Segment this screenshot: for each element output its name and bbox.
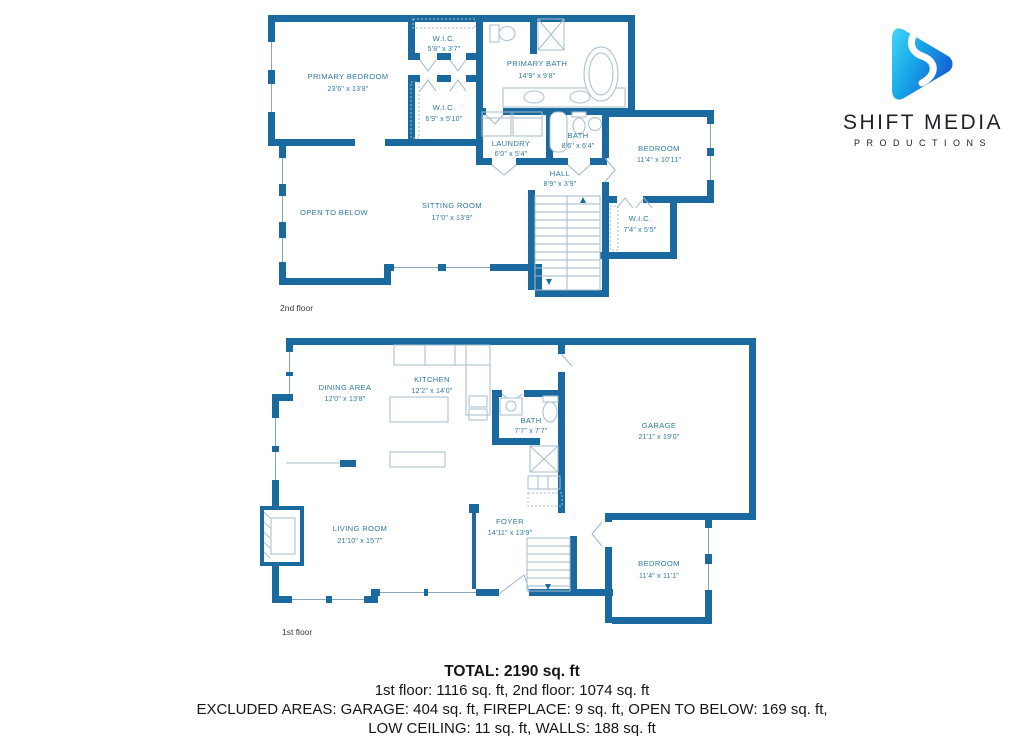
svg-text:BATH: BATH bbox=[520, 416, 541, 425]
room-label-wic-right: W.I.C. 7'4" x 5'5" bbox=[624, 214, 657, 234]
svg-text:6'0" x 5'4": 6'0" x 5'4" bbox=[495, 151, 528, 158]
svg-text:GARAGE: GARAGE bbox=[642, 421, 677, 430]
svg-text:12'0" x 13'8": 12'0" x 13'8" bbox=[325, 396, 366, 403]
shower-icon bbox=[538, 19, 564, 50]
room-label-sitting-room: SITTING ROOM 17'0" x 13'9" bbox=[422, 201, 482, 222]
fireplace-icon bbox=[262, 508, 302, 564]
room-label-bedroom-2nd: BEDROOM 11'4" x 10'11" bbox=[637, 144, 681, 164]
svg-text:7'7" x 7'7": 7'7" x 7'7" bbox=[515, 428, 548, 435]
walls-2nd bbox=[268, 15, 714, 297]
summary-excluded-2: LOW CEILING: 11 sq. ft, WALLS: 188 sq. f… bbox=[0, 719, 1024, 738]
svg-text:5'8" x 3'7": 5'8" x 3'7" bbox=[428, 46, 461, 53]
floor-plan-1st: KITCHEN 12'2" x 14'0" DINING AREA 12'0" … bbox=[262, 338, 756, 637]
room-label-living-room: LIVING ROOM 21'10" x 15'7" bbox=[333, 524, 387, 545]
svg-text:23'6" x 13'8": 23'6" x 13'8" bbox=[328, 86, 369, 93]
floorplan-flyer: { "logo": { "brand": "SHIFT MEDIA", "sub… bbox=[0, 0, 1024, 739]
logo: SHIFT MEDIA PRODUCTIONS bbox=[838, 26, 1008, 148]
svg-text:21'1" x 19'0": 21'1" x 19'0" bbox=[639, 434, 680, 441]
room-label-wic-top: W.I.C. 5'8" x 3'7" bbox=[428, 34, 461, 53]
staircase-1st-icon bbox=[527, 538, 570, 591]
summary-excluded-1: EXCLUDED AREAS: GARAGE: 404 sq. ft, FIRE… bbox=[0, 700, 1024, 719]
svg-text:W.I.C.: W.I.C. bbox=[433, 34, 456, 43]
room-labels-2nd: W.I.C. 5'8" x 3'7" PRIMARY BEDROOM 23'6"… bbox=[300, 34, 681, 234]
storage-icon bbox=[528, 446, 562, 506]
svg-text:DINING AREA: DINING AREA bbox=[319, 383, 372, 392]
staircase-2nd-icon bbox=[535, 196, 600, 290]
svg-text:FOYER: FOYER bbox=[496, 517, 524, 526]
svg-text:11'4" x 10'11": 11'4" x 10'11" bbox=[637, 157, 681, 164]
svg-text:LIVING ROOM: LIVING ROOM bbox=[333, 524, 387, 533]
svg-text:PRIMARY BEDROOM: PRIMARY BEDROOM bbox=[308, 72, 389, 81]
area-summary: TOTAL: 2190 sq. ft 1st floor: 1116 sq. f… bbox=[0, 662, 1024, 738]
room-label-primary-bedroom: PRIMARY BEDROOM 23'6" x 13'8" bbox=[308, 72, 389, 93]
brand-icon bbox=[892, 26, 954, 102]
floor-plan-2nd: W.I.C. 5'8" x 3'7" PRIMARY BEDROOM 23'6"… bbox=[268, 15, 714, 313]
room-label-wic-mid: W.I.C. 6'9" x 5'10" bbox=[426, 103, 463, 123]
svg-text:BEDROOM: BEDROOM bbox=[638, 559, 680, 568]
bathtub-icon bbox=[584, 47, 618, 101]
brand-subtitle: PRODUCTIONS bbox=[838, 138, 1008, 148]
svg-text:HALL: HALL bbox=[550, 169, 570, 178]
room-label-bedroom-1st: BEDROOM 11'4" x 11'1" bbox=[638, 559, 680, 580]
summary-total: TOTAL: 2190 sq. ft bbox=[0, 662, 1024, 681]
svg-text:11'4" x 11'1": 11'4" x 11'1" bbox=[639, 573, 679, 580]
room-label-dining-area: DINING AREA 12'0" x 13'8" bbox=[319, 383, 372, 403]
room-label-kitchen: KITCHEN 12'2" x 14'0" bbox=[412, 375, 453, 395]
summary-floors: 1st floor: 1116 sq. ft, 2nd floor: 1074 … bbox=[0, 681, 1024, 700]
washer-dryer-icon bbox=[482, 112, 542, 136]
svg-text:W.I.C.: W.I.C. bbox=[629, 214, 652, 223]
room-label-open-to-below: OPEN TO BELOW bbox=[300, 208, 368, 217]
svg-text:LAUNDRY: LAUNDRY bbox=[492, 139, 531, 148]
room-label-hall: HALL 8'9" x 3'9" bbox=[544, 169, 577, 188]
svg-text:21'10" x 15'7": 21'10" x 15'7" bbox=[337, 538, 382, 545]
svg-text:8'6" x 6'4": 8'6" x 6'4" bbox=[562, 143, 595, 150]
svg-text:8'9" x 3'9": 8'9" x 3'9" bbox=[544, 181, 577, 188]
room-label-primary-bath: PRIMARY BATH 14'9" x 9'8" bbox=[507, 59, 567, 80]
toilet-icon bbox=[490, 25, 515, 42]
svg-text:17'0" x 13'9": 17'0" x 13'9" bbox=[432, 215, 473, 222]
svg-text:W.I.C.: W.I.C. bbox=[433, 103, 456, 112]
svg-text:BEDROOM: BEDROOM bbox=[638, 144, 680, 153]
svg-text:14'11" x 13'9": 14'11" x 13'9" bbox=[488, 530, 533, 537]
svg-text:OPEN TO BELOW: OPEN TO BELOW bbox=[300, 208, 368, 217]
room-label-bath-1st: BATH 7'7" x 7'7" bbox=[515, 416, 548, 435]
svg-text:14'9" x 9'8": 14'9" x 9'8" bbox=[519, 73, 556, 80]
svg-text:7'4" x 5'5": 7'4" x 5'5" bbox=[624, 227, 657, 234]
room-label-laundry: LAUNDRY 6'0" x 5'4" bbox=[492, 139, 531, 158]
svg-text:6'9" x 5'10": 6'9" x 5'10" bbox=[426, 116, 463, 123]
floor-caption-2nd: 2nd floor bbox=[280, 303, 313, 313]
walls-1st bbox=[272, 338, 756, 624]
room-label-foyer: FOYER 14'11" x 13'9" bbox=[488, 517, 533, 537]
room-label-garage: GARAGE 21'1" x 19'0" bbox=[639, 421, 680, 441]
floor-caption-1st: 1st floor bbox=[282, 627, 312, 637]
brand-name: SHIFT MEDIA bbox=[838, 111, 1008, 135]
svg-text:12'2" x 14'0": 12'2" x 14'0" bbox=[412, 388, 453, 395]
svg-text:SITTING ROOM: SITTING ROOM bbox=[422, 201, 482, 210]
room-labels-1st: KITCHEN 12'2" x 14'0" DINING AREA 12'0" … bbox=[319, 375, 680, 580]
kitchen-island-icon bbox=[390, 397, 448, 467]
svg-text:KITCHEN: KITCHEN bbox=[414, 375, 450, 384]
svg-text:BATH: BATH bbox=[567, 131, 588, 140]
svg-text:PRIMARY BATH: PRIMARY BATH bbox=[507, 59, 567, 68]
